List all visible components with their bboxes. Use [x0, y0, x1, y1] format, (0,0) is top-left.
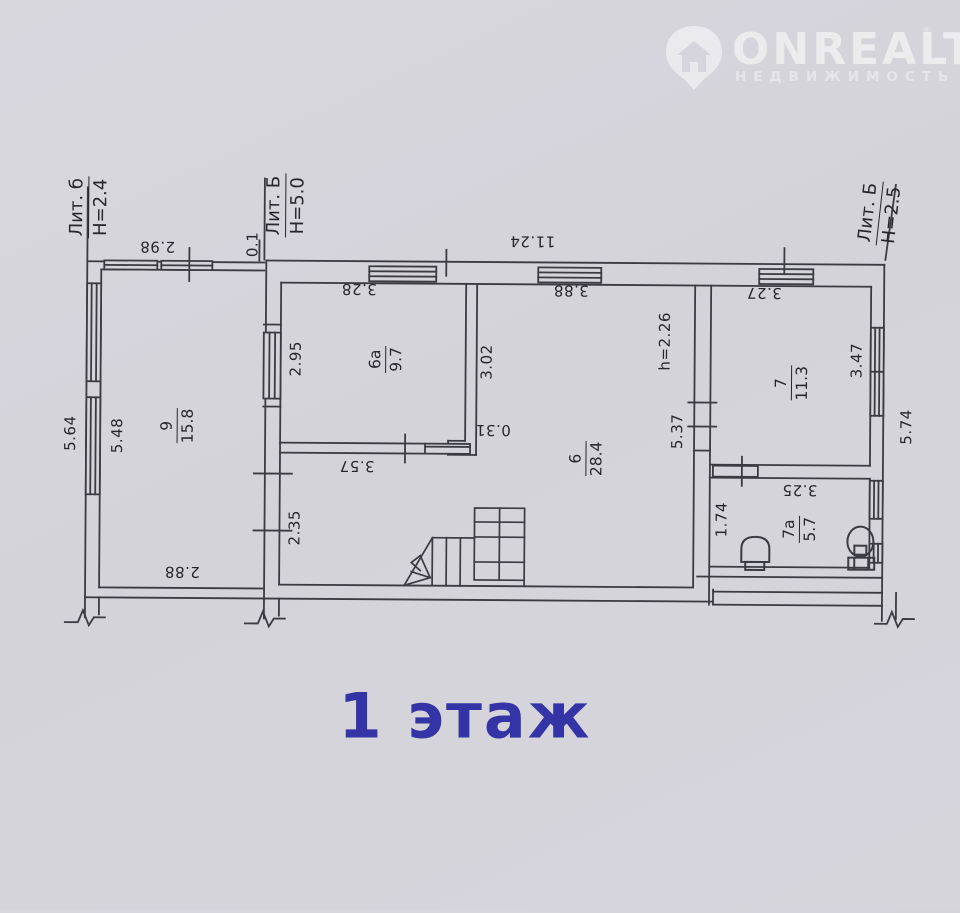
room-number: 7а [780, 515, 800, 543]
dimension-label-3.28: 3.28 [341, 280, 377, 298]
room-label-7: 711.3 [772, 366, 811, 401]
dimension-label-2.88: 2.88 [164, 563, 200, 581]
staircase [404, 507, 525, 586]
building-height: Н=5.0 [286, 174, 308, 238]
building-label-lit-B-right: Лит. БН=2.5 [854, 180, 906, 248]
room-label-7a: 7а5.7 [780, 515, 819, 543]
room-number: 9 [158, 408, 178, 443]
dimension-label-1.74: 1.74 [712, 502, 730, 538]
toilet-icon [741, 537, 769, 570]
dimension-label-0.31: 0.31 [475, 421, 511, 439]
room-label-9: 915.8 [158, 408, 197, 443]
dimension-label-2.35: 2.35 [285, 510, 303, 546]
dimension-label-3.88: 3.88 [553, 282, 589, 300]
dimension-label-0.1: 0.1 [243, 232, 261, 257]
dimension-label-11.24: 11.24 [510, 232, 556, 250]
room-area: 9.7 [386, 346, 405, 374]
dimension-label-2.95: 2.95 [287, 341, 305, 377]
building-label-lit-B-main: Лит. БН=5.0 [263, 174, 308, 238]
room-number: 6 [566, 441, 586, 476]
dimension-label-3.25: 3.25 [782, 481, 818, 499]
building-liter: Лит. Б [263, 174, 286, 238]
dimension-label-5.74: 5.74 [897, 409, 915, 445]
building-liter: Лит. б [66, 176, 89, 238]
room-label-6: 628.4 [566, 441, 605, 476]
room-area: 15.8 [178, 409, 197, 444]
floor-title: 1 этаж [339, 680, 592, 753]
dimension-label-3.02: 3.02 [478, 344, 496, 380]
room-number: 7 [772, 366, 792, 401]
floor-plan-drawing [0, 0, 960, 913]
dimension-label-h=2.26: h=2.26 [656, 312, 674, 371]
building-height: Н=2.4 [89, 176, 111, 238]
building-label-lit-b-annex: Лит. бН=2.4 [66, 176, 111, 239]
room-number: 6а [366, 346, 386, 374]
floor-plan: 2.980.111.243.283.883.275.645.482.953.02… [0, 0, 960, 913]
dimension-label-3.57: 3.57 [339, 457, 375, 475]
room-area: 11.3 [792, 366, 811, 401]
room-area: 5.7 [800, 516, 819, 544]
room-area: 28.4 [586, 441, 605, 476]
dimension-label-5.48: 5.48 [108, 418, 126, 454]
dimension-label-3.27: 3.27 [746, 284, 782, 302]
photo-of-floor-plan: ONREALT ® НЕДВИЖИМОСТЬ [0, 0, 960, 910]
dimension-label-5.37: 5.37 [668, 414, 686, 450]
room-label-6a: 6а9.7 [366, 346, 405, 374]
dimension-label-3.47: 3.47 [848, 343, 866, 379]
dimension-label-5.64: 5.64 [61, 415, 79, 451]
dimension-label-2.98: 2.98 [140, 238, 176, 256]
